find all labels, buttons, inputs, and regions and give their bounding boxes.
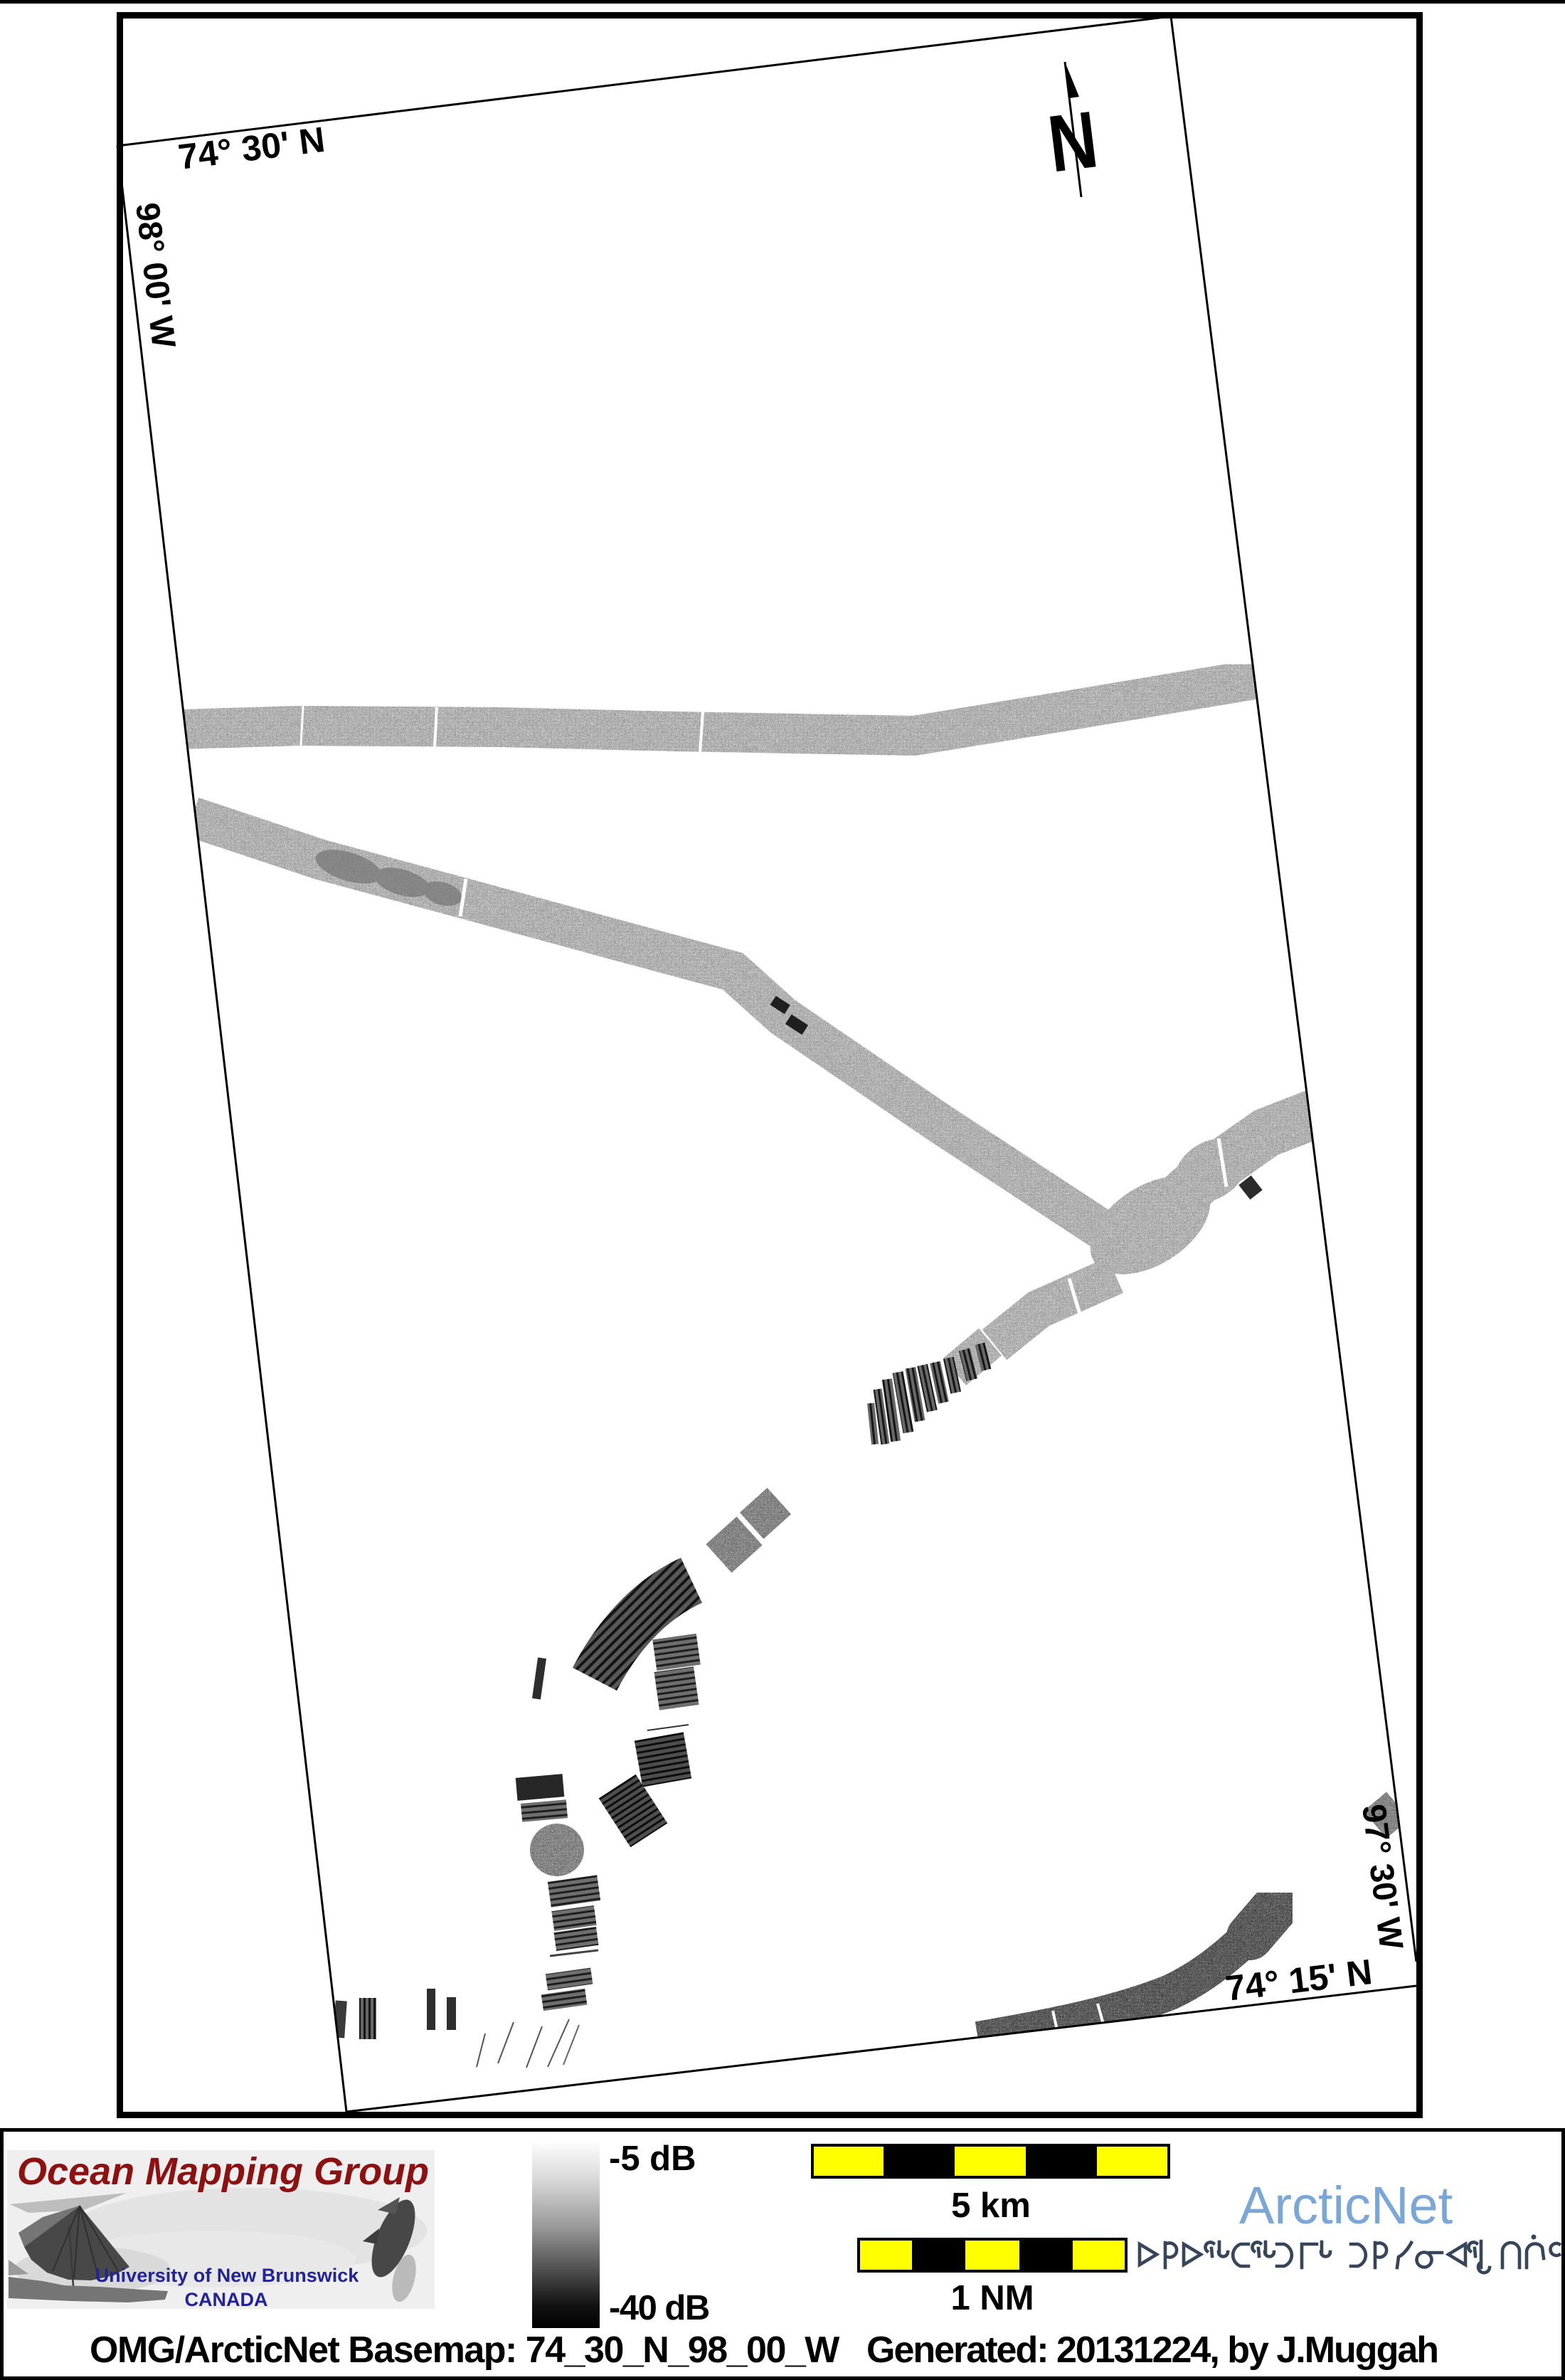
- svg-text:Ocean Mapping Group: Ocean Mapping Group: [17, 2150, 429, 2193]
- svg-text:CANADA: CANADA: [185, 2289, 268, 2310]
- svg-text:-5 dB: -5 dB: [609, 2140, 696, 2178]
- svg-text:OMG/ArcticNet Basemap: 74_30_N: OMG/ArcticNet Basemap: 74_30_N_98_00_W: [90, 2329, 840, 2371]
- svg-text:ArcticNet: ArcticNet: [1239, 2176, 1453, 2235]
- svg-text:-40 dB: -40 dB: [609, 2289, 709, 2327]
- svg-text:5 km: 5 km: [951, 2186, 1031, 2225]
- svg-text:Generated: 20131224, by J.Mugg: Generated: 20131224, by J.Muggah: [866, 2329, 1438, 2371]
- svg-text:1 NM: 1 NM: [950, 2279, 1034, 2317]
- svg-text:University of New Brunswick: University of New Brunswick: [95, 2265, 360, 2286]
